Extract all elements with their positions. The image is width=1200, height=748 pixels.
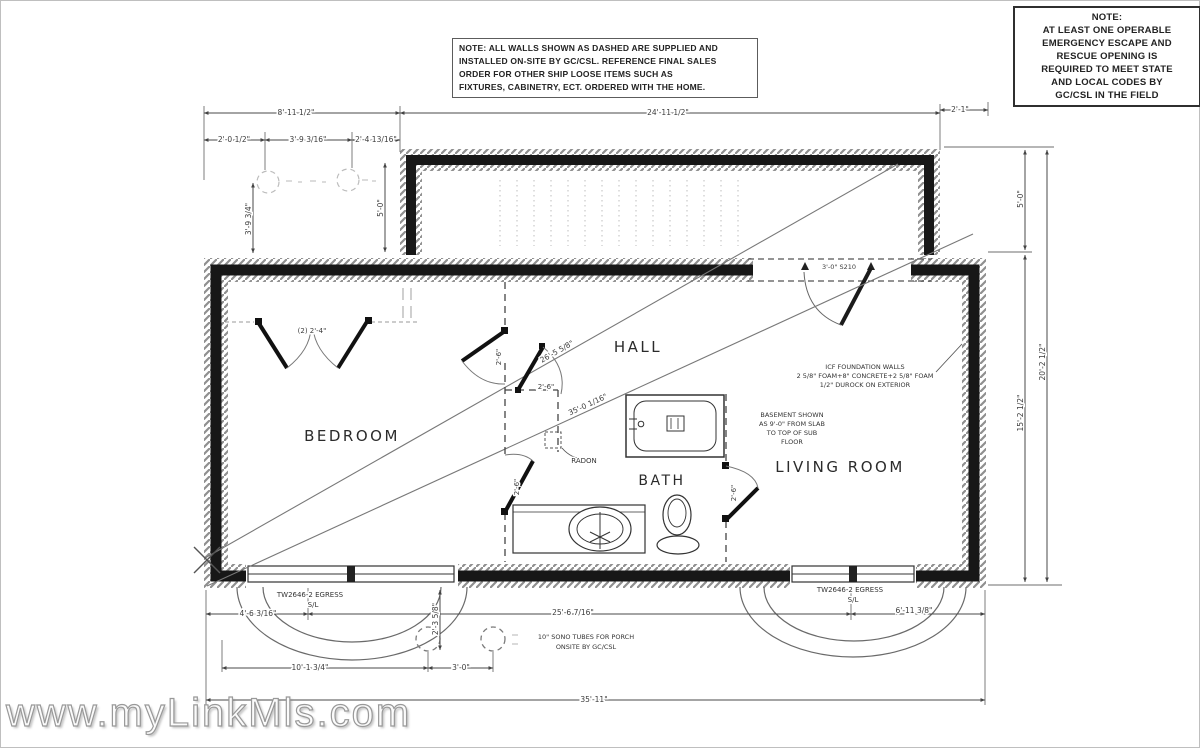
dim-bottom-overall: 35'-11" [580,695,607,704]
basement-note-line-3: TO TOP OF SUB [766,429,818,437]
dim-door-bedroom: 2'-6" [495,349,503,366]
egress-note-box: NOTE: AT LEAST ONE OPERABLE EMERGENCY ES… [1013,6,1200,107]
dim-top-left-overall: 8'-11 1/2" [278,108,315,117]
wall-note-box: NOTE: ALL WALLS SHOWN AS DASHED ARE SUPP… [452,38,758,98]
basement-note-line-1: BASEMENT SHOWN [760,411,823,419]
dim-right-inner: 15'-2 1/2" [1016,395,1025,432]
dim-right-outer: 20'-2 1/2" [1038,344,1047,381]
dim-bottom-small-vert: 2'-3 5/8" [431,603,440,635]
icf-note-line-2: 2 5/8" FOAM+8" CONCRETE+2 5/8" FOAM [797,372,934,380]
floor-plan-page: 8'-11 1/2" 2'-0 1/2" 3'-9 3/16" 2'-4 13/… [0,0,1200,748]
dim-right-upper: 5'-0" [1016,190,1025,208]
basement-note-line-2: AS 9'-0" FROM SLAB [759,420,825,428]
dim-hall-door: 3'-0" S210 [822,263,856,271]
dim-porch-width: 24'-11 1/2" [647,108,689,117]
dim-porch-depth: 5'-0" [376,199,385,217]
radon-label: RADON [571,457,597,465]
egress-note-line: AT LEAST ONE OPERABLE [1017,24,1197,37]
dim-right-offset: 2'-1" [951,105,969,114]
footing-faint-marks [286,180,376,182]
sono-faint-dashes [512,635,518,644]
egress-note-line: EMERGENCY ESCAPE AND [1017,37,1197,50]
watermark: www.myLinkMls.com [6,691,411,736]
wall-note-line: FIXTURES, CABINETRY, ECT. ORDERED WITH T… [459,81,751,94]
room-label-hall: HALL [614,338,662,356]
room-label-bath: BATH [638,473,685,489]
dim-top-sub-1: 2'-0 1/2" [218,135,250,144]
vanity-sink [513,505,645,553]
dim-door-living: 2'-6" [730,485,738,502]
wall-note-line: INSTALLED ON-SITE BY GC/CSL. REFERENCE F… [459,55,751,68]
room-label-bedroom: BEDROOM [304,427,400,445]
dim-bottom-seg-left: 4'-6 3/16" [240,609,277,618]
footing-circles-faint [257,169,359,193]
dim-left-vert: 3'-9 3/4" [244,203,253,235]
window-right [790,562,916,588]
window-left-label2: S/L [308,601,319,609]
bathtub [626,395,724,457]
egress-note-line: GC/CSL IN THE FIELD [1017,89,1197,102]
egress-note-line: NOTE: [1017,11,1197,24]
dim-door-bath: 2'-6" [513,479,521,496]
dim-porch-post-left: 10'-1 3/4" [292,663,329,672]
dim-bottom-seg-right: 6'-11 3/8" [896,606,933,615]
sono-note-line-2: ONSITE BY GC/CSL [556,643,617,651]
dim-double-door: (2) 2'-4" [298,327,327,335]
wall-note-line: NOTE: ALL WALLS SHOWN AS DASHED ARE SUPP… [459,42,751,55]
window-right-label2: S/L [848,596,859,604]
room-label-living: LIVING ROOM [775,458,905,476]
dim-top-sub-2: 3'-9 3/16" [290,135,327,144]
icf-note-line-3: 1/2" DUROCK ON EXTERIOR [820,381,911,389]
egress-note-line: AND LOCAL CODES BY [1017,76,1197,89]
dim-porch-post-spacing: 3'-0" [452,663,470,672]
window-right-label: TW2646-2 EGRESS [816,586,884,594]
dim-bottom-seg-mid: 25'-6 7/16" [552,608,594,617]
egress-note-line: REQUIRED TO MEET STATE [1017,63,1197,76]
floor-plan-drawing: 8'-11 1/2" 2'-0 1/2" 3'-9 3/16" 2'-4 13/… [0,0,1200,748]
egress-note-line: RESCUE OPENING IS [1017,50,1197,63]
dim-door-closet: 2'-6" [538,383,555,391]
sono-note-line-1: 10" SONO TUBES FOR PORCH [538,633,634,641]
basement-note-line-4: FLOOR [781,438,803,446]
wall-note-line: ORDER FOR OTHER SHIP LOOSE ITEMS SUCH AS [459,68,751,81]
sono-tube-circles [416,627,505,651]
window-left [246,562,458,588]
window-left-label: TW2646-2 EGRESS [276,591,344,599]
dim-top-sub-3: 2'-4 13/16" [355,135,397,144]
icf-note-line-1: ICF FOUNDATION WALLS [825,363,904,371]
